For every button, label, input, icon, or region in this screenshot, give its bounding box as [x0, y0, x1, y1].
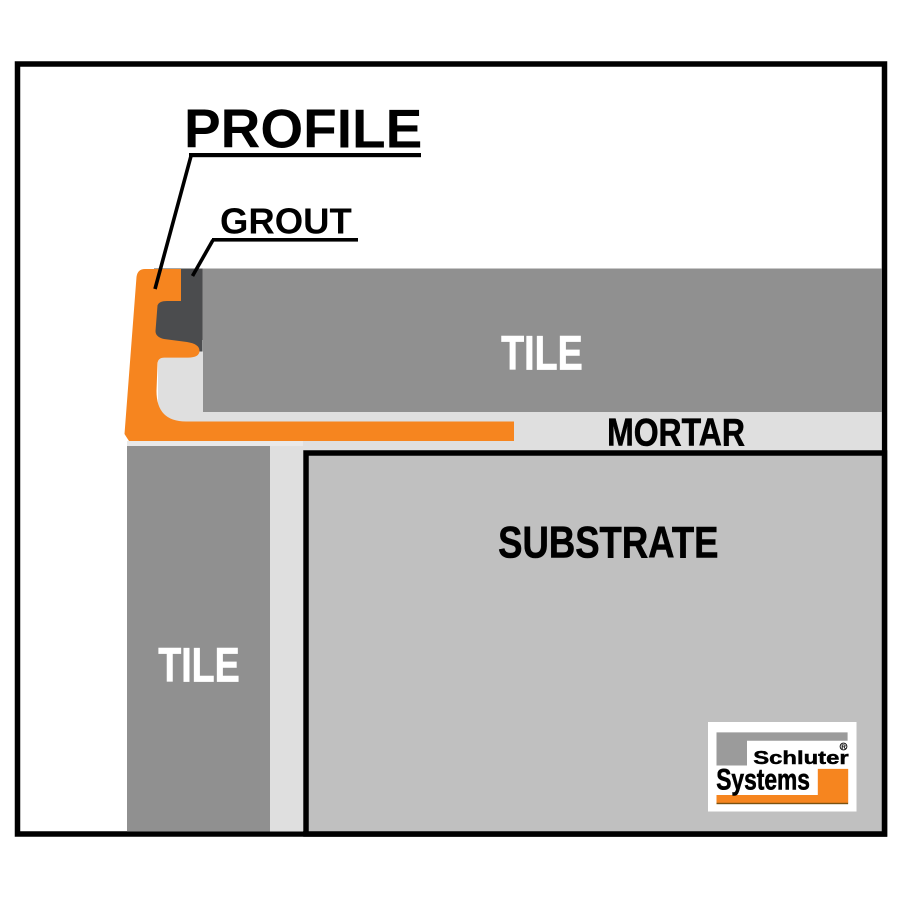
svg-text:TILE: TILE: [501, 327, 583, 380]
svg-text:SUBSTRATE: SUBSTRATE: [498, 517, 718, 567]
svg-text:MORTAR: MORTAR: [607, 412, 745, 454]
svg-text:PROFILE: PROFILE: [184, 98, 422, 160]
svg-text:TILE: TILE: [158, 639, 240, 692]
svg-text:Systems: Systems: [716, 763, 810, 797]
svg-text:R: R: [841, 744, 846, 751]
svg-text:GROUT: GROUT: [220, 201, 352, 242]
